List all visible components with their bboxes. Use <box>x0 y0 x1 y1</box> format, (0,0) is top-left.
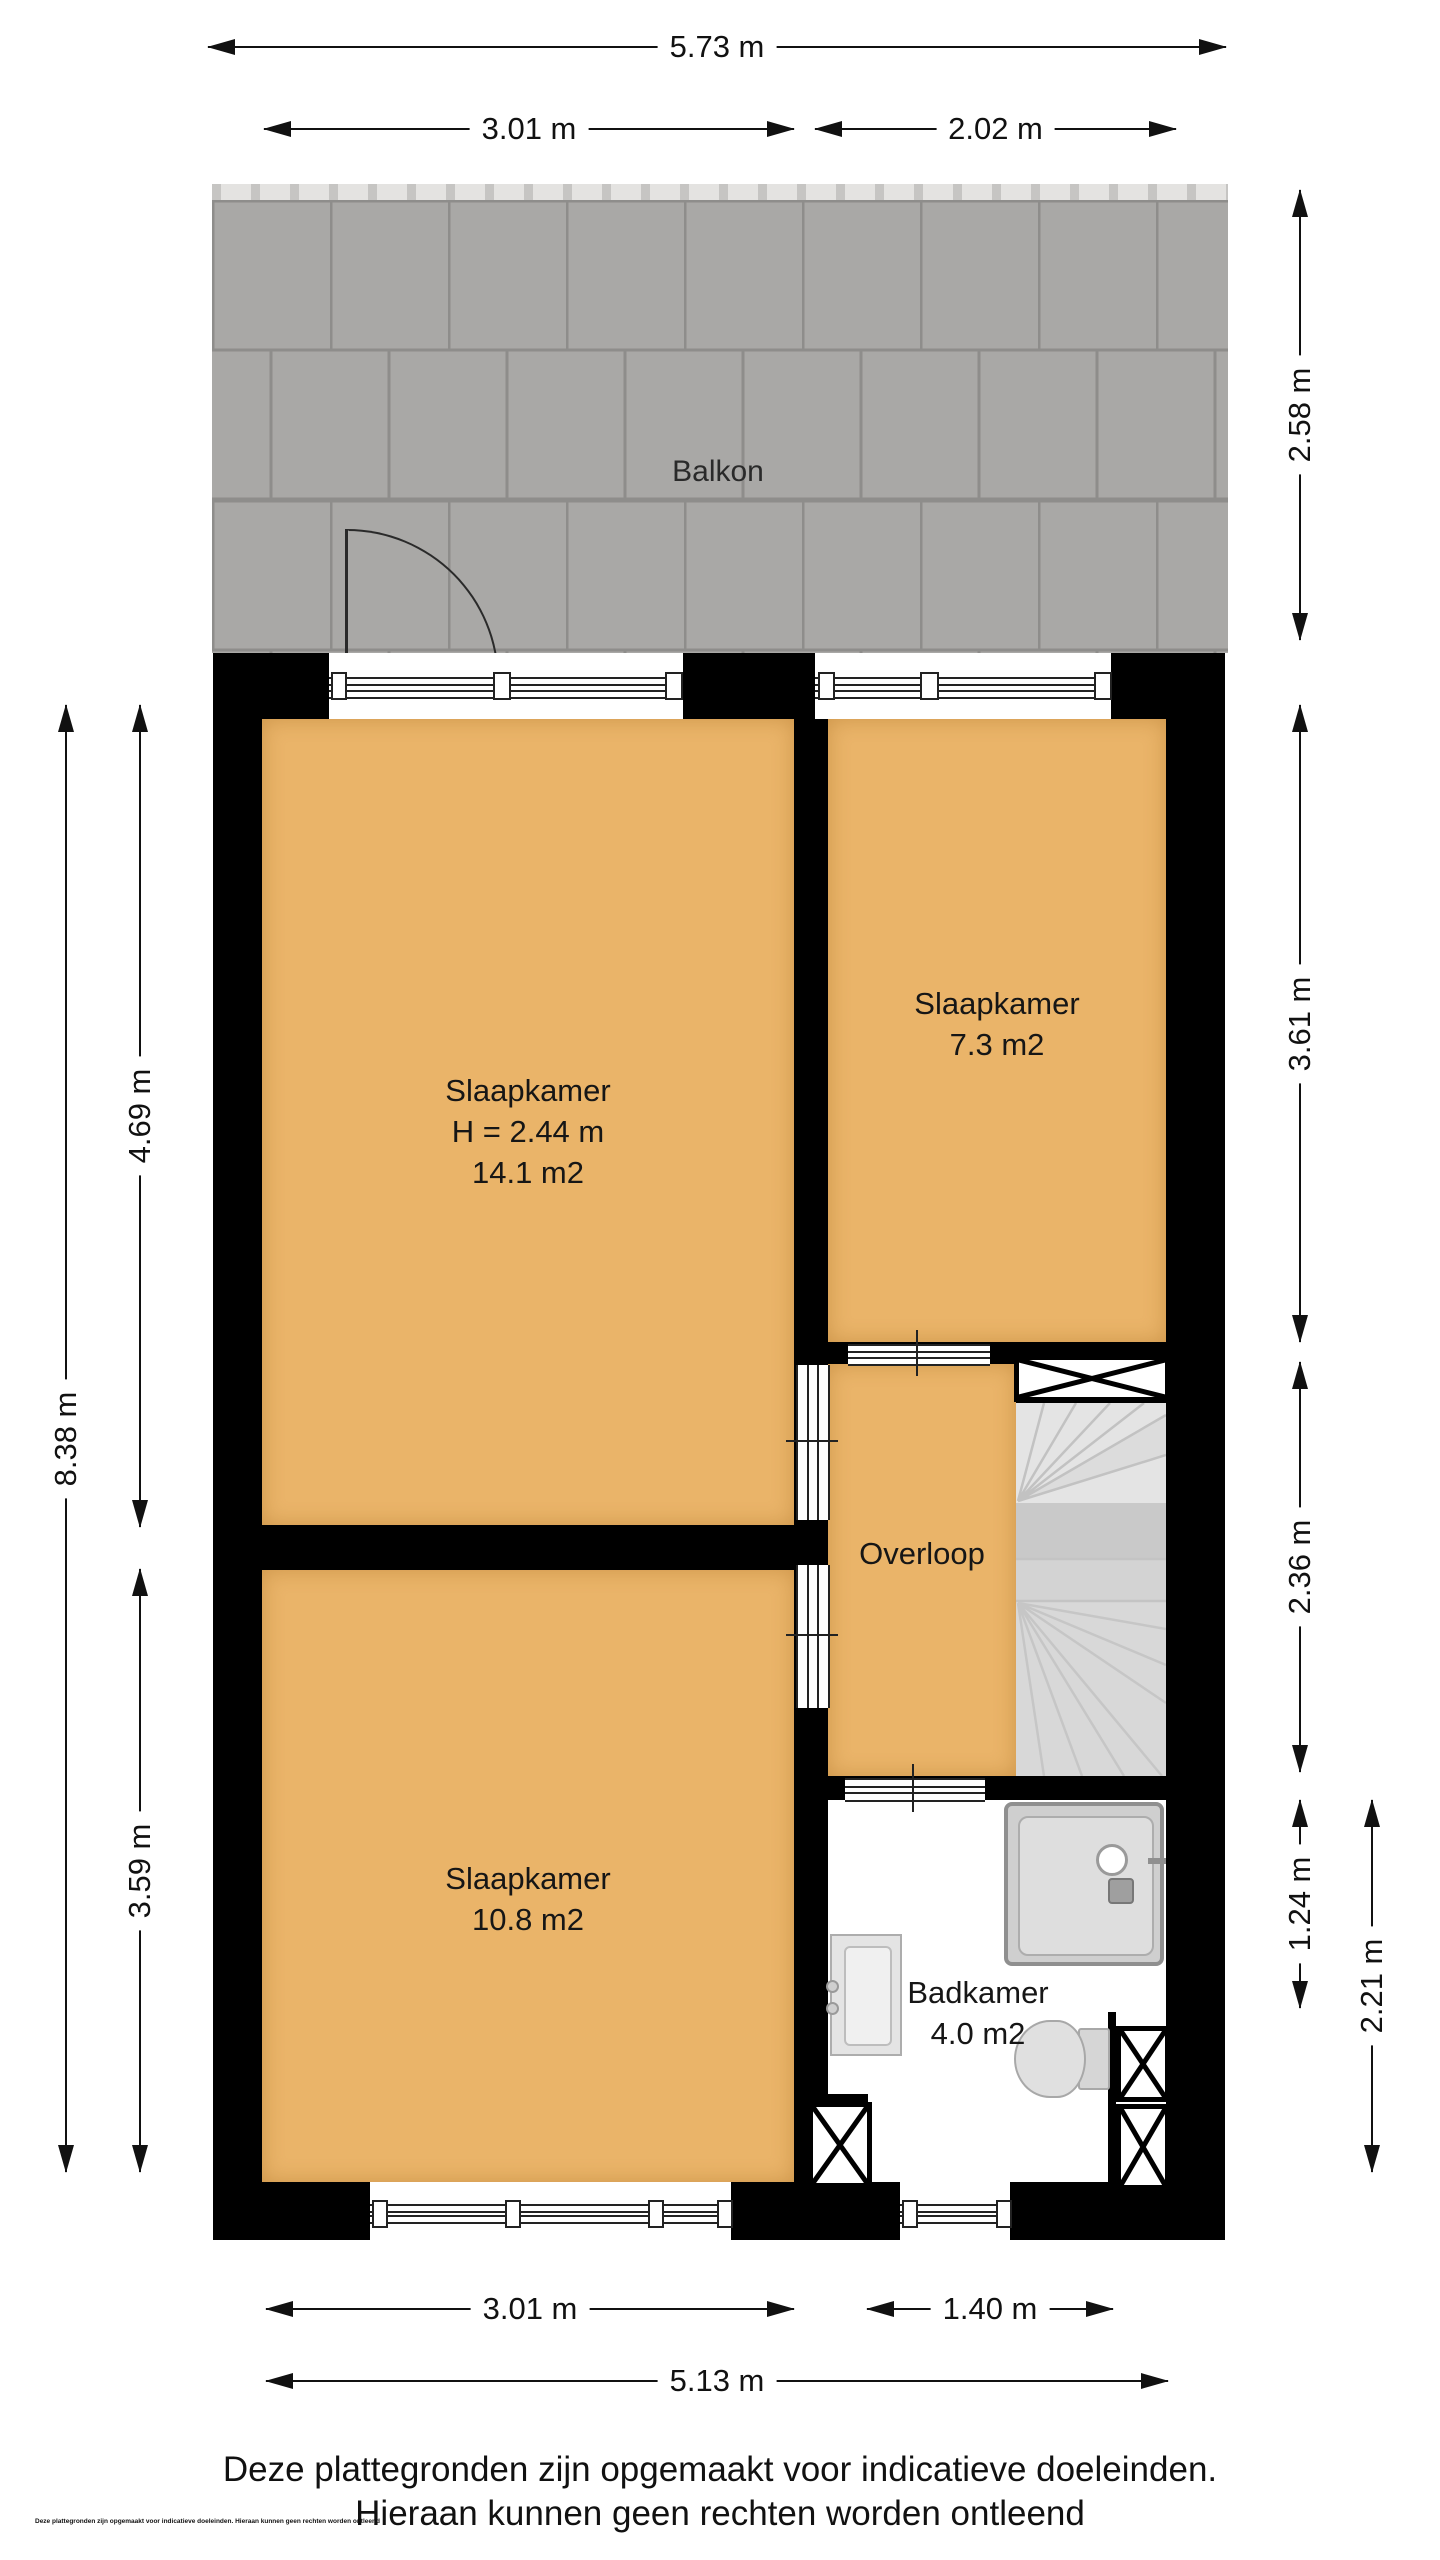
room-area: 14.1 m2 <box>262 1152 794 1193</box>
dimension-bottom-total: 5.13 m <box>266 2380 1168 2382</box>
room-name: Overloop <box>820 1533 1024 1574</box>
window-post <box>331 672 347 700</box>
room-label-badkamer: Badkamer 4.0 m2 <box>828 1972 1128 2054</box>
room-label-slaapkamer-lower: Slaapkamer 10.8 m2 <box>262 1858 794 1940</box>
shower <box>1004 1802 1164 1966</box>
balcony-label: Balkon <box>618 455 818 489</box>
window-bedroom-lower <box>370 2204 731 2224</box>
room-area: 10.8 m2 <box>262 1899 794 1940</box>
door-overloop-bedroom-large <box>796 1365 830 1520</box>
fine-print-disclaimer: Deze plattegronden zijn opgemaakt voor i… <box>35 2518 380 2525</box>
wall-top-corner-right <box>1111 653 1225 719</box>
window-post <box>902 2200 918 2228</box>
door-overloop-bedroom-lower <box>796 1565 830 1708</box>
floor-plan: Balkon <box>0 0 1440 2560</box>
dimension-top-total: 5.73 m <box>208 46 1226 48</box>
window-post <box>493 672 511 700</box>
window-post <box>648 2200 664 2228</box>
window-post <box>665 672 683 700</box>
dimension-top-right: 2.02 m <box>815 128 1176 130</box>
room-label-slaapkamer-small: Slaapkamer 7.3 m2 <box>828 983 1166 1065</box>
door-tick <box>912 1764 914 1812</box>
room-name: Slaapkamer <box>828 983 1166 1024</box>
door-overloop-badkamer <box>845 1778 985 1802</box>
door-tick <box>786 1634 838 1636</box>
shower-control-icon <box>1108 1878 1134 1904</box>
room-name: Badkamer <box>828 1972 1128 2013</box>
disclaimer-line1: Deze plattegronden zijn opgemaakt voor i… <box>0 2448 1440 2492</box>
stairs <box>1016 1403 1166 1776</box>
wall-between-bedrooms <box>262 1525 794 1570</box>
window-post <box>818 672 835 700</box>
disclaimer-line2: Hieraan kunnen geen rechten worden ontle… <box>0 2492 1440 2536</box>
balcony-railing-edge <box>212 184 1228 200</box>
dimension-left-lower: 3.59 m <box>139 1569 141 2172</box>
shaft-x-panel <box>1014 1355 1170 1402</box>
shower-arm <box>1148 1858 1166 1864</box>
wall-left <box>213 653 262 2240</box>
window-post <box>372 2200 388 2228</box>
door-overloop-bedroom-small <box>848 1344 990 1366</box>
dimension-balcony-depth: 2.58 m <box>1299 190 1301 640</box>
room-area: 7.3 m2 <box>828 1024 1166 1065</box>
room-area: 4.0 m2 <box>828 2013 1128 2054</box>
window-post <box>920 672 939 700</box>
window-bedroom-small <box>815 677 1111 699</box>
window-post <box>717 2200 733 2228</box>
dimension-bottom-right: 1.40 m <box>867 2308 1113 2310</box>
dimension-right-middle: 2.36 m <box>1299 1362 1301 1772</box>
dimension-right-lower: 2.21 m <box>1371 1800 1373 2172</box>
window-post <box>996 2200 1012 2228</box>
door-tick <box>916 1330 918 1376</box>
shaft-x-panel <box>808 2102 872 2188</box>
dimension-bottom-left: 3.01 m <box>266 2308 794 2310</box>
room-name: Slaapkamer <box>262 1070 794 1111</box>
dimension-left-upper: 4.69 m <box>139 705 141 1527</box>
wall-top-corner-left <box>213 653 329 719</box>
wall-right <box>1166 653 1225 2240</box>
room-ceiling-height: H = 2.44 m <box>262 1111 794 1152</box>
room-name: Slaapkamer <box>262 1858 794 1899</box>
door-tick <box>786 1440 838 1442</box>
dimension-top-left: 3.01 m <box>264 128 794 130</box>
window-post <box>505 2200 521 2228</box>
dimension-left-total: 8.38 m <box>65 705 67 2172</box>
shower-head-icon <box>1096 1844 1128 1876</box>
room-label-overloop: Overloop <box>820 1533 1024 1574</box>
window-post <box>1094 672 1112 700</box>
shaft-x-panel <box>1116 2104 1170 2190</box>
dimension-right-upper: 3.61 m <box>1299 705 1301 1342</box>
wall-top-middle <box>683 653 815 719</box>
room-label-slaapkamer-large: Slaapkamer H = 2.44 m 14.1 m2 <box>262 1070 794 1193</box>
dimension-right-small: 1.24 m <box>1299 1800 1301 2008</box>
